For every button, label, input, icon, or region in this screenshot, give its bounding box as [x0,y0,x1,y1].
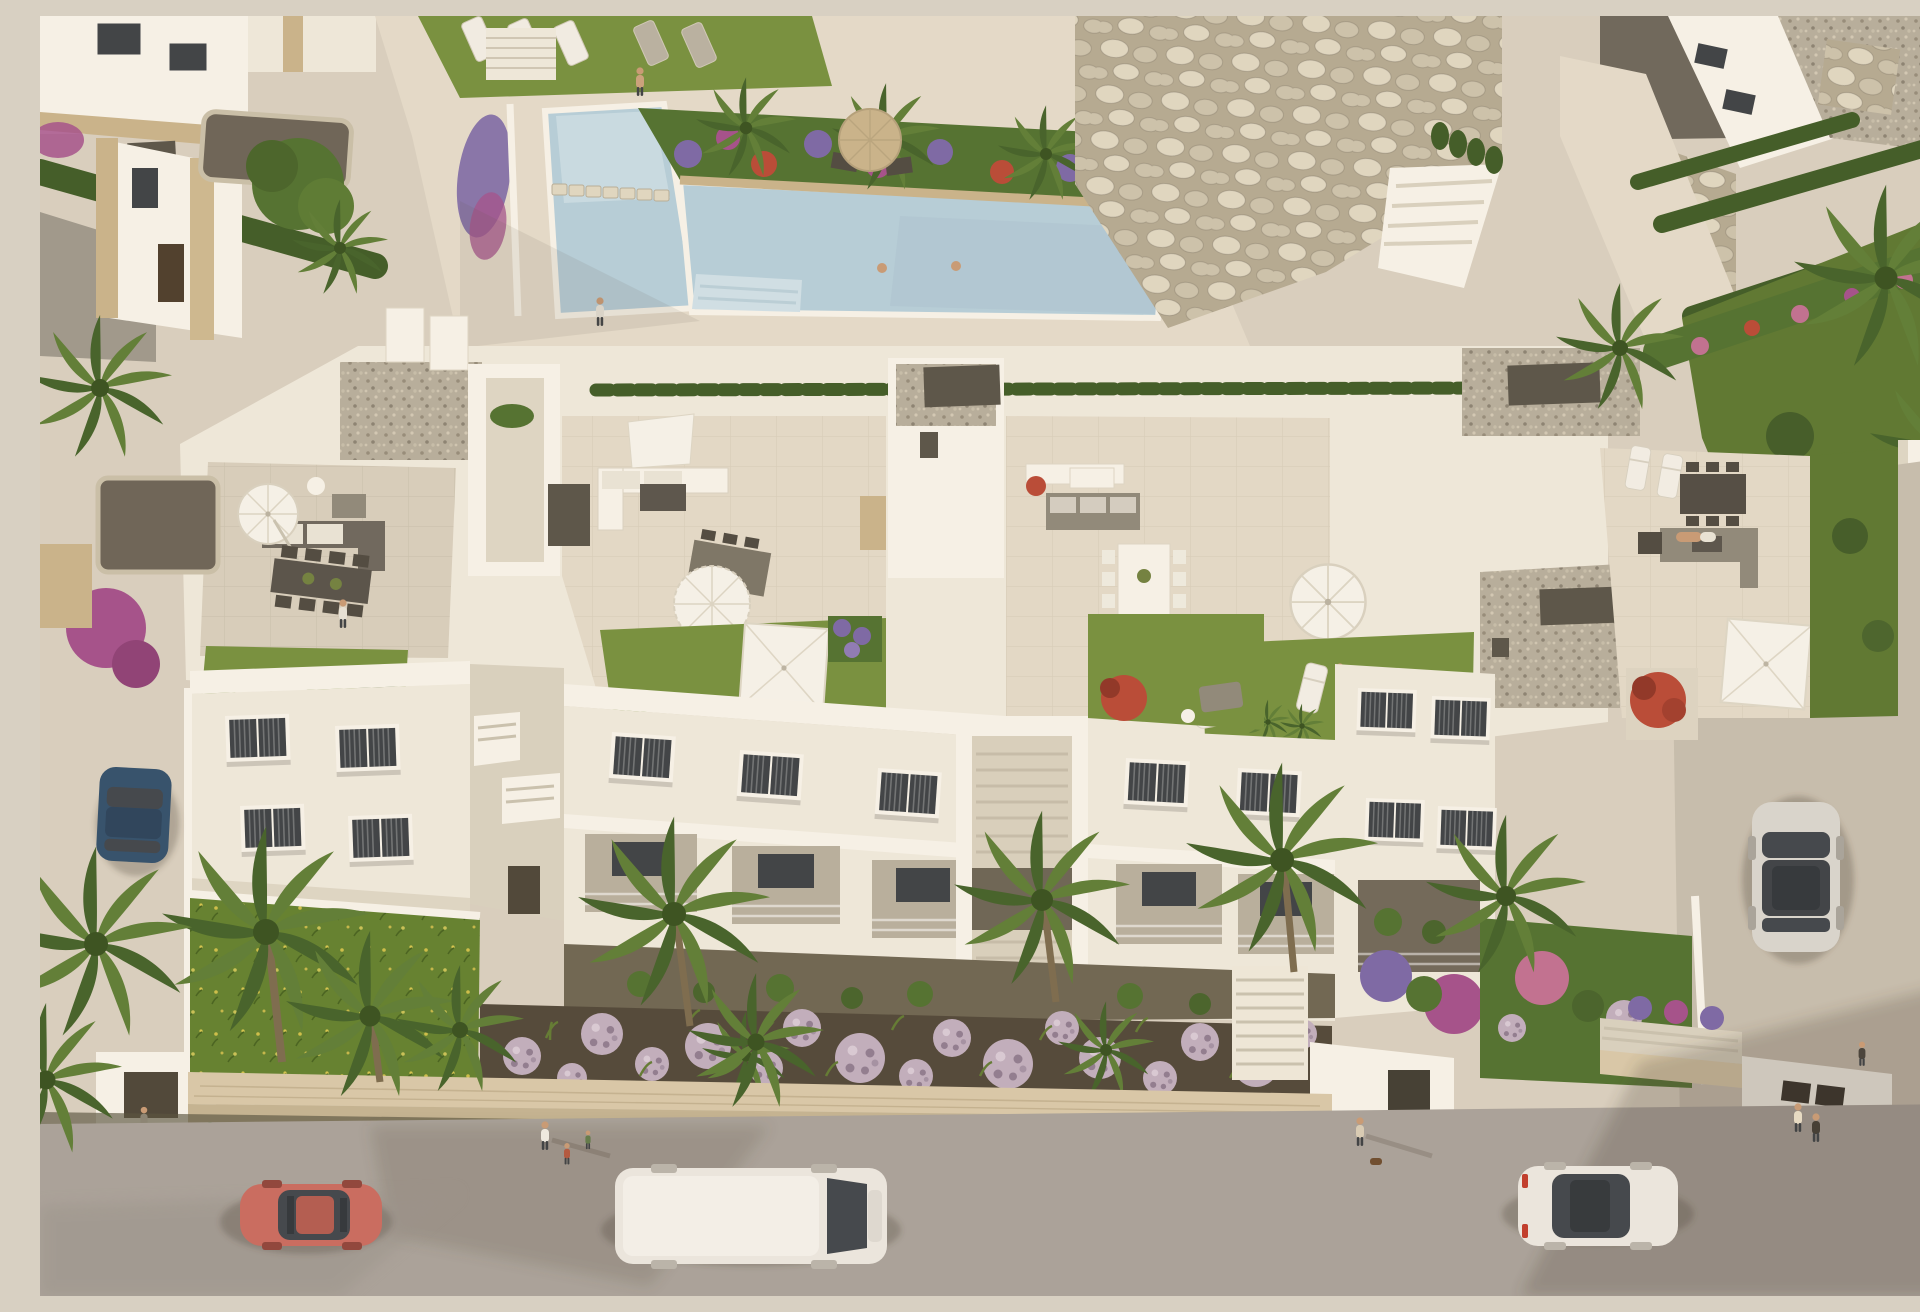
aerial-render: Aerial 3D rendering of a white Mediterra… [40,16,1920,1296]
warm-light-overlay [40,16,1920,1296]
scene-canvas [40,16,1920,1296]
